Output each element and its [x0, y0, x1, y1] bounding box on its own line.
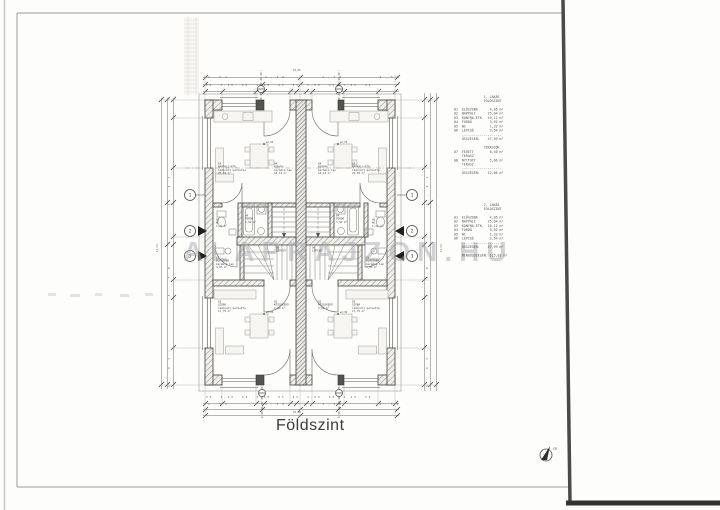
scanned-drawing-sheet: 1 2 3 1 2 3 m ALAPRAJZON.HU 1. LAKÁS FÖL…: [0, 0, 720, 510]
room-label-nappali-2: 03 NAPPALI+ÉTK. laminált parketta 25,04 …: [352, 162, 380, 175]
room-label-wc-2: 05 WC 1,32 m²: [372, 218, 383, 228]
section-label: 1: [189, 193, 192, 199]
room-label-nappali-1: 03 NAPPALI+ÉTK. laminált parketta 25,04 …: [218, 162, 246, 175]
room-label-furdo-2: 04 FÜRDŐ 3,92 m²: [336, 214, 347, 224]
dim-top-small: 90 3,40 60 2,60 95 95 2,60 60 3,40 90: [206, 84, 372, 87]
dim-right-seg: 3,93 3,30 3,93: [426, 169, 429, 387]
dim-left-total: 11,54: [156, 244, 159, 252]
dim-left-seg: 3,93 3,30 3,93: [168, 169, 171, 387]
drawing-title: Földszint: [276, 417, 345, 435]
room-schedule-unit1: 1. LAKÁS FÖLDSZINT 01 ELŐSZOBA 4,05 m² 0…: [452, 95, 504, 175]
dim-bottom-small: 90 3,40 60 2,60 95 95 2,60 60 3,40 90: [206, 396, 372, 399]
dim-bottom-mid: 4,52 4,38 4,38 4,52: [208, 403, 402, 406]
room-label-lepcso-2: 06 LÉPCSŐ: [312, 246, 322, 253]
room-label-konyha-1: 04 KONYHA kerámia lap 10,12 m²: [274, 162, 292, 175]
level-mark: ±0,00: [340, 311, 347, 314]
room-schedule-unit2: 2. LAKÁS FÖLDSZINT 01 ELŐSZOBA 4,05 m² 0…: [452, 203, 507, 258]
room-label-szoba-2: 02 SZOBA laminált parketta 17,75 m²: [352, 300, 380, 313]
dim-bottom-total: 18,86: [293, 411, 301, 414]
room-label-eloszoba-1: 01 ELŐSZOBA kerámia lap 4,05 m²: [216, 256, 234, 269]
room-label-konyha-2: 04 KONYHA kerámia lap 10,12 m²: [318, 162, 336, 175]
section-label: 2: [189, 229, 192, 235]
section-label: 1: [411, 193, 414, 199]
room-label-lepcso-1: 06 LÉPCSŐ: [276, 246, 286, 253]
brick-strip: [184, 17, 199, 95]
room-label-furdo-1: 04 FÜRDŐ 3,92 m²: [245, 214, 256, 224]
dim-top-total: 18,86: [293, 69, 301, 72]
room-label-eloszoba-2: 01 ELŐSZOBA kerámia lap 4,05 m²: [366, 256, 384, 269]
level-mark: ±0,00: [340, 141, 347, 144]
room-label-szoba-1: 02 SZOBA laminált parketta 17,75 m²: [218, 300, 246, 313]
north-label: m: [553, 447, 558, 452]
section-label: 2: [411, 229, 414, 235]
dim-top-mid: 4,52 4,38 4,38 4,52: [208, 76, 402, 79]
dim-right-total: 11,54: [440, 244, 443, 252]
north-arrow-icon: m: [540, 446, 558, 461]
room-label-wc-1: 05 WC 1,32 m²: [216, 218, 227, 228]
level-mark: ±0,00: [266, 141, 273, 144]
level-mark: ±0,00: [266, 311, 273, 314]
room-label-kozlekedo-1: 02 KÖZLEKEDŐ 2,80 m²: [274, 300, 289, 310]
room-label-kozlekedo-2: 02 KÖZLEKEDŐ 2,80 m²: [318, 300, 333, 310]
